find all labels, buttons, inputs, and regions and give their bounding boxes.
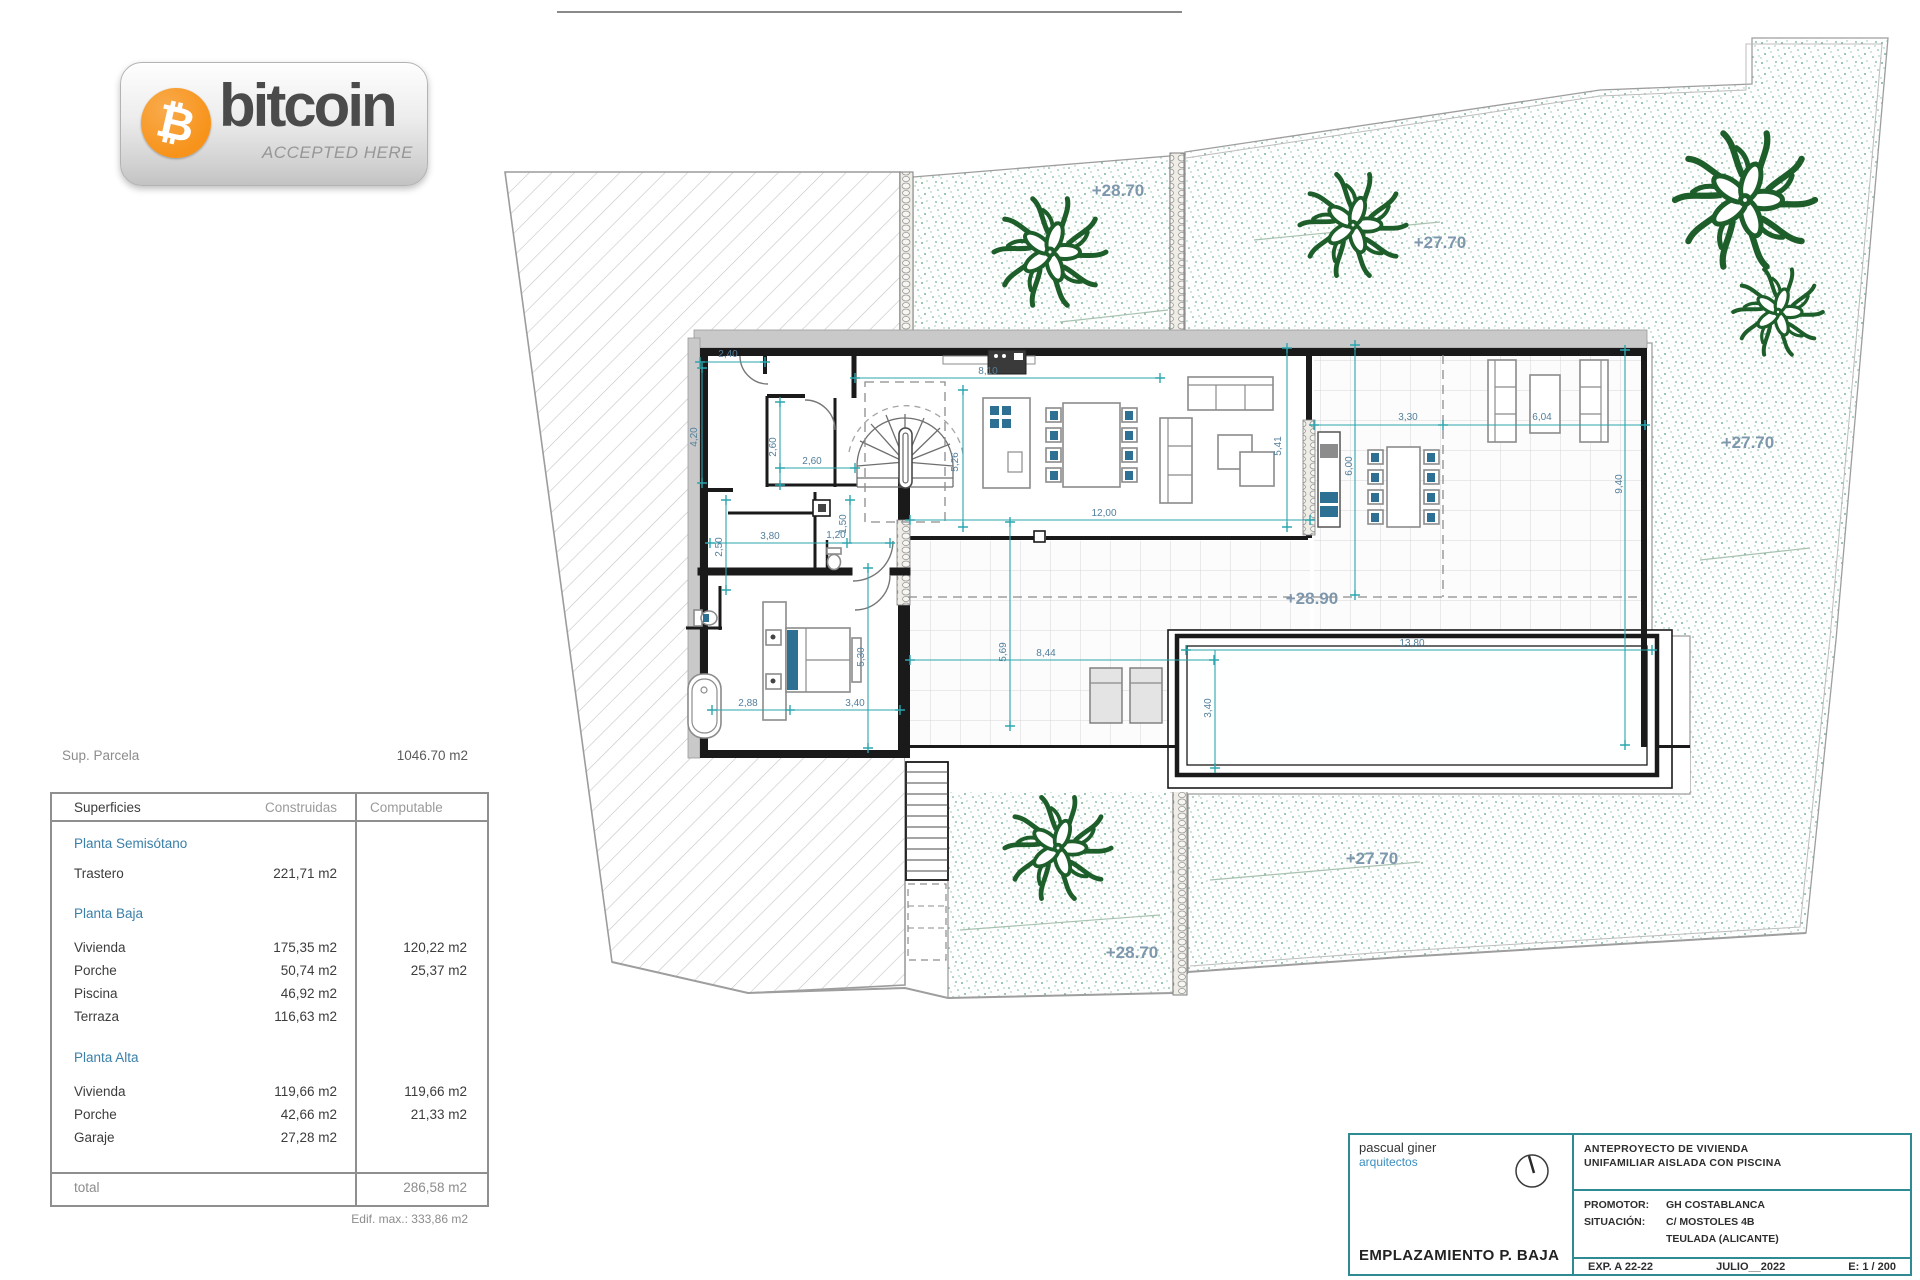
parapet-top <box>694 330 1647 348</box>
dim-label: 8,44 <box>1036 648 1056 659</box>
dim-label: 3,40 <box>845 698 865 709</box>
dim-label: 3,40 <box>1203 698 1214 718</box>
header-construidas: Construidas <box>167 800 337 815</box>
table-header-divider <box>52 820 487 822</box>
table-total-row: total 286,58 m2 <box>52 1180 487 1200</box>
level-label: +28.90 <box>1286 589 1338 608</box>
section-title: Planta Alta <box>52 1050 487 1070</box>
bathtub-icon <box>688 674 721 738</box>
dim-label: 2,50 <box>714 537 725 557</box>
bitcoin-badge: ₿ bitcoin ACCEPTED HERE <box>120 62 428 186</box>
bitcoin-wordmark: bitcoin <box>219 71 395 140</box>
project-date: JULIO__2022 <box>1716 1261 1785 1273</box>
bitcoin-symbol: ₿ <box>134 81 218 165</box>
parcel-label: Sup. Parcela <box>62 748 139 763</box>
wall-pebble-strip <box>897 520 910 605</box>
title-block-footer: EXP. A 22-22 JULIO__2022 E: 1 / 200 <box>1574 1259 1910 1274</box>
level-label: +28.70 <box>1092 181 1144 200</box>
drawing-title: EMPLAZAMIENTO P. BAJA <box>1359 1247 1559 1264</box>
dim-label: 6,04 <box>1532 412 1552 423</box>
dim-label: 3,80 <box>760 531 780 542</box>
situation-value1: C/ MOSTOLES 4B <box>1666 1216 1755 1228</box>
level-label: +27.70 <box>1722 433 1774 452</box>
situation-label: SITUACIÓN: <box>1584 1214 1666 1231</box>
table-header-row: Superficies Construidas Computable <box>52 800 487 820</box>
dim-label: 2,60 <box>802 456 822 467</box>
promoter-value: GH COSTABLANCA <box>1666 1199 1765 1211</box>
dim-label: 12,00 <box>1091 508 1116 519</box>
max-buildable-note: Edif. max.: 333,86 m2 <box>50 1212 468 1226</box>
swimming-pool <box>1168 630 1672 788</box>
bitcoin-coin-icon: ₿ <box>141 88 211 158</box>
table-row: Porche 50,74 m2 25,37 m2 <box>52 963 487 983</box>
bitcoin-tagline: ACCEPTED HERE <box>262 143 413 163</box>
dim-label: 3,30 <box>1398 412 1418 423</box>
level-label: +28.70 <box>1106 943 1158 962</box>
drawing-scale: E: 1 / 200 <box>1848 1261 1896 1273</box>
section-title: Planta Baja <box>52 906 487 926</box>
blueprint-page: .dim{stroke:#2aa6ae;stroke-width:1.1;fil… <box>0 0 1920 1280</box>
column <box>1034 531 1045 542</box>
level-label: +27.70 <box>1346 849 1398 868</box>
situation-value2: TEULADA (ALICANTE) <box>1666 1233 1779 1245</box>
dim-label: 5,30 <box>856 647 867 667</box>
header-superficies: Superficies <box>74 800 141 815</box>
firm-name: pascual giner <box>1359 1141 1436 1155</box>
level-label: +27.70 <box>1414 233 1466 252</box>
table-row: Trastero 221,71 m2 <box>52 866 487 886</box>
dim-label: 2,60 <box>768 437 779 457</box>
toilet-icon <box>828 555 841 570</box>
parcel-value: 1046.70 m2 <box>397 748 468 763</box>
dim-label: 1,50 <box>838 514 849 534</box>
dim-label: 9,40 <box>1614 474 1625 494</box>
dim-label: 2,40 <box>718 349 738 360</box>
parcel-area-row: Sup. Parcela 1046.70 m2 <box>62 748 468 763</box>
table-row: Vivienda 175,35 m2 120,22 m2 <box>52 940 487 960</box>
table-row: Terraza 116,63 m2 <box>52 1009 487 1029</box>
title-block-left: pascual giner arquitectos EMPLAZAMIENTO … <box>1350 1135 1574 1274</box>
dim-label: 13,80 <box>1399 638 1424 649</box>
expedient-number: EXP. A 22-22 <box>1588 1261 1653 1273</box>
dim-label: 4,20 <box>689 427 700 447</box>
table-row: Porche 42,66 m2 21,33 m2 <box>52 1107 487 1127</box>
table-row: Garaje 27,28 m2 <box>52 1130 487 1150</box>
table-total-divider <box>52 1172 487 1174</box>
header-computable: Computable <box>370 800 443 815</box>
section-title: Planta Semisótano <box>52 836 487 856</box>
north-arrow-icon <box>1510 1147 1554 1191</box>
firm-subtitle: arquitectos <box>1359 1155 1436 1169</box>
title-block-right: ANTEPROYECTO DE VIVIENDA UNIFAMILIAR AIS… <box>1574 1135 1910 1274</box>
title-block: pascual giner arquitectos EMPLAZAMIENTO … <box>1348 1133 1912 1276</box>
dim-label: 8,10 <box>978 366 998 377</box>
surfaces-table: Superficies Construidas Computable Plant… <box>50 792 489 1207</box>
promoter-label: PROMOTOR: <box>1584 1197 1666 1214</box>
dim-label: 6,00 <box>1344 456 1355 476</box>
dim-label: 5,41 <box>1273 436 1284 456</box>
project-title: ANTEPROYECTO DE VIVIENDA UNIFAMILIAR AIS… <box>1574 1135 1910 1191</box>
dim-label: 2,88 <box>738 698 758 709</box>
project-info: PROMOTOR:GH COSTABLANCA SITUACIÓN:C/ MOS… <box>1574 1191 1910 1259</box>
table-row: Vivienda 119,66 m2 119,66 m2 <box>52 1084 487 1104</box>
dim-label: 5,26 <box>950 452 961 472</box>
exterior-stair <box>906 762 948 960</box>
dim-label: 5,69 <box>998 642 1009 662</box>
table-row: Piscina 46,92 m2 <box>52 986 487 1006</box>
